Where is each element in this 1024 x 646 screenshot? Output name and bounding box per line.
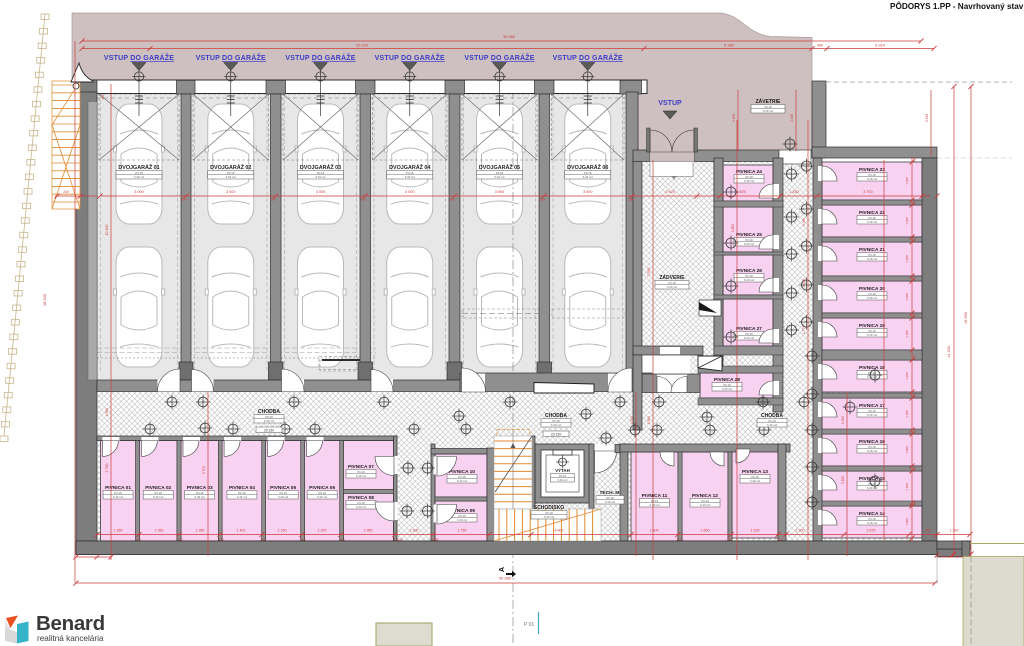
svg-text:1 200: 1 200: [318, 529, 327, 533]
svg-text:1 600: 1 600: [701, 529, 710, 533]
svg-text:1 360: 1 360: [114, 529, 123, 533]
svg-text:1 600: 1 600: [650, 529, 659, 533]
svg-text:6.49 m2: 6.49 m2: [867, 486, 878, 490]
svg-text:100: 100: [913, 501, 917, 506]
svg-text:6.49 m2: 6.49 m2: [317, 495, 328, 499]
svg-text:3 160: 3 160: [841, 476, 845, 484]
svg-text:DVOJGARÁŽ 03: DVOJGARÁŽ 03: [300, 163, 341, 171]
svg-text:1 600: 1 600: [647, 416, 651, 424]
svg-text:10 400: 10 400: [105, 225, 109, 236]
svg-text:450: 450: [101, 94, 105, 100]
svg-text:6.49 m2: 6.49 m2: [134, 175, 145, 179]
svg-text:DVOJGARÁŽ 04: DVOJGARÁŽ 04: [389, 163, 430, 171]
svg-text:6.49 m2: 6.49 m2: [867, 413, 878, 417]
svg-text:1 330: 1 330: [789, 190, 799, 194]
svg-text:3 575: 3 575: [867, 529, 876, 533]
svg-text:100: 100: [913, 237, 917, 242]
svg-text:6.49 m2: 6.49 m2: [867, 220, 878, 224]
svg-text:200: 200: [181, 198, 187, 202]
svg-text:6.49 m2: 6.49 m2: [494, 175, 505, 179]
svg-text:realitná kancelária: realitná kancelária: [37, 634, 104, 643]
svg-text:100: 100: [913, 429, 917, 434]
svg-text:6.49 m2: 6.49 m2: [356, 505, 367, 509]
svg-text:30 980: 30 980: [503, 34, 516, 39]
svg-text:30 980: 30 980: [499, 576, 512, 581]
svg-text:100: 100: [913, 466, 917, 471]
svg-text:6.49 m2: 6.49 m2: [583, 175, 594, 179]
svg-text:20 220: 20 220: [356, 43, 369, 48]
svg-text:100: 100: [913, 355, 917, 360]
svg-text:VSTUP DO GARÁŽE: VSTUP DO GARÁŽE: [375, 53, 445, 62]
svg-text:3 700: 3 700: [105, 464, 109, 473]
svg-text:200: 200: [539, 198, 545, 202]
svg-text:100: 100: [177, 538, 182, 542]
svg-text:3 000: 3 000: [226, 190, 236, 194]
svg-text:100: 100: [135, 538, 140, 542]
svg-text:6.49 m2: 6.49 m2: [649, 503, 660, 507]
svg-text:A: A: [499, 567, 506, 572]
svg-text:100: 100: [913, 200, 917, 205]
svg-text:1 280: 1 280: [905, 372, 909, 380]
svg-text:1 960: 1 960: [105, 408, 109, 416]
svg-text:1 750: 1 750: [458, 529, 467, 533]
svg-text:6.49 m2: 6.49 m2: [226, 175, 237, 179]
svg-text:6.49 m2: 6.49 m2: [867, 296, 878, 300]
svg-text:1 550: 1 550: [802, 218, 806, 226]
svg-text:VSTUP DO GARÁŽE: VSTUP DO GARÁŽE: [196, 53, 266, 62]
svg-text:1 775: 1 775: [802, 326, 806, 334]
svg-text:P 01: P 01: [524, 622, 534, 628]
svg-text:6.49 m2: 6.49 m2: [113, 495, 124, 499]
svg-text:4 800: 4 800: [555, 529, 564, 533]
svg-text:VSTUP DO GARÁŽE: VSTUP DO GARÁŽE: [553, 53, 623, 62]
svg-text:6.49 m2: 6.49 m2: [153, 495, 164, 499]
svg-text:1 280: 1 280: [905, 483, 909, 491]
svg-text:6.49 m2: 6.49 m2: [315, 175, 326, 179]
svg-text:2 498: 2 498: [732, 114, 736, 122]
svg-text:3 700: 3 700: [863, 190, 873, 194]
svg-text:6.49 m2: 6.49 m2: [867, 449, 878, 453]
svg-text:1 280: 1 280: [905, 293, 909, 301]
svg-text:1 945: 1 945: [841, 416, 845, 424]
svg-text:1 280: 1 280: [905, 330, 909, 338]
svg-text:1 950: 1 950: [364, 529, 373, 533]
svg-text:100: 100: [727, 538, 732, 542]
svg-text:100: 100: [913, 157, 917, 162]
svg-text:6.49 m2: 6.49 m2: [767, 423, 778, 427]
svg-text:3 910: 3 910: [875, 43, 886, 48]
svg-text:100: 100: [913, 313, 917, 318]
svg-text:3 000: 3 000: [134, 190, 144, 194]
svg-text:480: 480: [817, 44, 823, 48]
svg-text:6.49 m2: 6.49 m2: [557, 478, 568, 482]
svg-text:1 825: 1 825: [736, 190, 746, 194]
svg-text:6.49 m2: 6.49 m2: [195, 495, 206, 499]
svg-text:6.49 m2: 6.49 m2: [867, 257, 878, 261]
svg-text:1 350: 1 350: [155, 529, 164, 533]
svg-text:2 498: 2 498: [790, 114, 794, 122]
svg-text:1 280: 1 280: [905, 217, 909, 225]
svg-text:6.49 m2: 6.49 m2: [457, 479, 468, 483]
svg-text:6.49 m2: 6.49 m2: [551, 423, 562, 427]
svg-text:1 150: 1 150: [278, 529, 287, 533]
svg-text:1 280: 1 280: [905, 177, 909, 185]
svg-text:PÔDORYS 1.PP - Navrhovaný stav: PÔDORYS 1.PP - Navrhovaný stav: [890, 0, 1024, 11]
svg-text:6.49 m2: 6.49 m2: [544, 515, 555, 519]
svg-text:16 900: 16 900: [964, 312, 968, 324]
svg-text:100: 100: [397, 538, 402, 542]
svg-text:1 625: 1 625: [751, 529, 760, 533]
svg-text:VSTUP: VSTUP: [658, 100, 682, 107]
svg-text:DVOJGARÁŽ 02: DVOJGARÁŽ 02: [210, 163, 251, 171]
svg-text:VSTUP DO GARÁŽE: VSTUP DO GARÁŽE: [464, 53, 534, 62]
svg-text:14 400: 14 400: [947, 346, 951, 358]
svg-text:100: 100: [676, 538, 681, 542]
svg-text:200: 200: [270, 198, 276, 202]
svg-text:1 280: 1 280: [905, 518, 909, 526]
svg-text:6.49 m2: 6.49 m2: [278, 495, 289, 499]
svg-text:18 900: 18 900: [42, 293, 47, 306]
svg-text:3 100: 3 100: [630, 416, 634, 424]
svg-text:3 000: 3 000: [583, 190, 593, 194]
svg-text:250: 250: [628, 198, 634, 202]
svg-text:2 498: 2 498: [925, 114, 929, 122]
svg-text:200: 200: [360, 198, 366, 202]
svg-text:6.49 m2: 6.49 m2: [264, 419, 275, 423]
svg-text:460: 460: [925, 529, 931, 533]
svg-text:6.49 m2: 6.49 m2: [763, 109, 774, 113]
svg-text:29.150: 29.150: [264, 429, 274, 433]
svg-text:VSTUP DO GARÁŽE: VSTUP DO GARÁŽE: [285, 53, 355, 62]
svg-text:100: 100: [913, 393, 917, 398]
svg-text:6.49 m2: 6.49 m2: [605, 500, 616, 504]
svg-text:6.49 m2: 6.49 m2: [867, 375, 878, 379]
svg-text:6.49 m2: 6.49 m2: [867, 333, 878, 337]
svg-text:3 000: 3 000: [316, 190, 326, 194]
svg-text:240: 240: [63, 190, 69, 194]
svg-text:3 000: 3 000: [405, 190, 415, 194]
svg-text:VÝTAH: VÝTAH: [555, 468, 570, 473]
svg-text:6.49 m2: 6.49 m2: [744, 336, 755, 340]
svg-text:1 300: 1 300: [796, 529, 805, 533]
svg-text:6.49 m2: 6.49 m2: [750, 479, 761, 483]
svg-text:DVOJGARÁŽ 06: DVOJGARÁŽ 06: [567, 163, 608, 171]
svg-text:6.49 m2: 6.49 m2: [722, 387, 733, 391]
svg-text:6.49 m2: 6.49 m2: [700, 503, 711, 507]
svg-text:1 350: 1 350: [196, 529, 205, 533]
svg-text:29.150: 29.150: [551, 433, 561, 437]
svg-text:6.49 m2: 6.49 m2: [667, 285, 678, 289]
svg-text:1 605: 1 605: [731, 224, 735, 232]
svg-text:1 280: 1 280: [905, 410, 909, 418]
svg-text:6.49 m2: 6.49 m2: [356, 474, 367, 478]
svg-text:6.49 m2: 6.49 m2: [457, 518, 468, 522]
svg-text:1 420: 1 420: [802, 279, 806, 287]
svg-text:3 000: 3 000: [495, 190, 505, 194]
svg-text:100: 100: [218, 538, 223, 542]
svg-text:100: 100: [433, 538, 438, 542]
svg-text:100: 100: [260, 538, 265, 542]
svg-text:100: 100: [913, 276, 917, 281]
svg-text:6.49 m2: 6.49 m2: [744, 278, 755, 282]
svg-text:100: 100: [339, 538, 344, 542]
svg-text:100: 100: [300, 538, 305, 542]
svg-text:1 280: 1 280: [905, 446, 909, 454]
svg-text:2 925: 2 925: [665, 190, 675, 194]
svg-text:1 280: 1 280: [905, 255, 909, 263]
svg-text:5 980: 5 980: [724, 43, 735, 48]
svg-text:6.49 m2: 6.49 m2: [867, 521, 878, 525]
svg-text:Benard: Benard: [36, 612, 105, 635]
svg-text:100: 100: [777, 538, 782, 542]
svg-text:VSTUP DO GARÁŽE: VSTUP DO GARÁŽE: [104, 53, 174, 62]
svg-text:1 300: 1 300: [410, 529, 419, 533]
svg-text:6.49 m2: 6.49 m2: [405, 175, 416, 179]
svg-text:6.49 m2: 6.49 m2: [744, 179, 755, 183]
svg-text:6.49 m2: 6.49 m2: [744, 242, 755, 246]
svg-text:DVOJGARÁŽ 01: DVOJGARÁŽ 01: [118, 163, 159, 171]
svg-text:3 700: 3 700: [202, 466, 206, 475]
svg-text:6.49 m2: 6.49 m2: [867, 177, 878, 181]
svg-text:200: 200: [449, 198, 455, 202]
svg-text:DVOJGARÁŽ 05: DVOJGARÁŽ 05: [479, 163, 520, 171]
svg-text:7 650: 7 650: [647, 268, 651, 277]
svg-text:1 401: 1 401: [237, 529, 246, 533]
svg-text:6.49 m2: 6.49 m2: [237, 495, 248, 499]
